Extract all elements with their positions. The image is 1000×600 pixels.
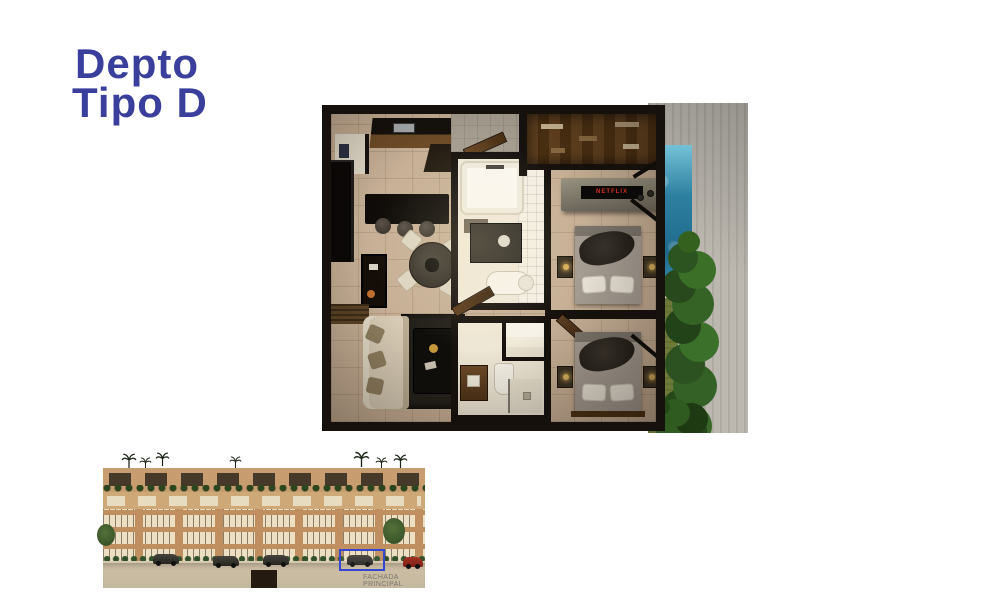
- living-window: [322, 340, 331, 402]
- presentation-page: Depto Tipo D: [0, 0, 1000, 600]
- interior-wall: [519, 114, 527, 176]
- shelf-unit: [361, 254, 387, 308]
- street-tree: [383, 518, 405, 544]
- bed-1: [575, 226, 641, 304]
- lamp: [563, 374, 569, 380]
- title-line-1: Depto: [72, 44, 208, 83]
- vanity-sink: [467, 375, 480, 387]
- kitchen-sink: [393, 123, 415, 133]
- bedroom-2-glass-wall: [657, 326, 665, 430]
- nightstand: [643, 366, 659, 388]
- kitchen-appliance: [339, 144, 349, 158]
- linen-closet: [502, 323, 544, 361]
- left-window: [322, 202, 331, 228]
- bed-pillow: [581, 275, 606, 294]
- street-tree: [97, 524, 115, 546]
- car: [153, 554, 179, 564]
- shelf-item: [369, 264, 378, 270]
- speaker: [647, 190, 654, 197]
- wardrobe-closet: [527, 114, 665, 170]
- car: [263, 555, 289, 565]
- nightstand: [557, 366, 573, 388]
- shelf-decor: [367, 290, 375, 298]
- vanity-sink: [498, 235, 510, 247]
- floorplan-render: NETFLIX: [322, 101, 748, 433]
- vertical-garden: [678, 231, 700, 253]
- shower: [508, 379, 542, 413]
- upper-floor: [103, 492, 425, 509]
- left-window: [322, 166, 331, 192]
- facade-elevation: FACHADA PRINCIPAL: [95, 450, 440, 585]
- nightstand: [643, 256, 659, 278]
- lamp: [563, 264, 569, 270]
- bedroom-1-glass-wall: [657, 176, 665, 306]
- shower-drain: [523, 392, 531, 400]
- car: [213, 556, 239, 566]
- bar-stool: [375, 218, 391, 234]
- page-title: Depto Tipo D: [72, 44, 208, 122]
- building-entrance: [251, 570, 277, 588]
- speaker: [637, 194, 644, 201]
- palm-tree-icon: [121, 452, 137, 468]
- bed-2: [575, 332, 641, 412]
- bed-pillow: [609, 275, 634, 294]
- bathroom-1: [451, 152, 551, 310]
- toilet-seat: [518, 275, 534, 291]
- bar-stool: [419, 221, 435, 237]
- palm-tree-icon: [229, 455, 242, 468]
- palm-tree-icon: [155, 451, 170, 466]
- bathroom-2: [451, 316, 551, 422]
- closet-books: [623, 144, 639, 149]
- top-floor: [103, 468, 425, 492]
- tv-screen: NETFLIX: [581, 186, 643, 199]
- table-decor: [429, 344, 438, 353]
- bathroom-vanity: [470, 223, 522, 263]
- tub-faucet: [486, 165, 504, 169]
- sofa-pillow: [366, 377, 385, 396]
- entrance-highlight-box: [339, 549, 385, 571]
- palm-tree-icon: [393, 453, 408, 468]
- bed-pillow: [609, 383, 634, 402]
- closet-books: [551, 148, 565, 153]
- car-red: [403, 557, 423, 567]
- storage-cabinet: [330, 160, 354, 262]
- bed-pillow: [582, 383, 607, 401]
- closet-books: [615, 122, 639, 127]
- facade-label: FACHADA PRINCIPAL: [363, 574, 440, 588]
- title-line-2: Tipo D: [72, 83, 208, 122]
- apartment-unit: NETFLIX: [322, 105, 665, 431]
- closet-books: [541, 124, 563, 129]
- lamp: [649, 374, 655, 380]
- nightstand: [557, 256, 573, 278]
- closet-books: [579, 136, 597, 141]
- palm-tree-icon: [353, 450, 370, 467]
- table-centerpiece: [425, 258, 439, 272]
- bathtub: [460, 161, 524, 215]
- lamp: [649, 264, 655, 270]
- upper-floor-windows: [107, 496, 421, 506]
- bed-platform: [571, 411, 645, 417]
